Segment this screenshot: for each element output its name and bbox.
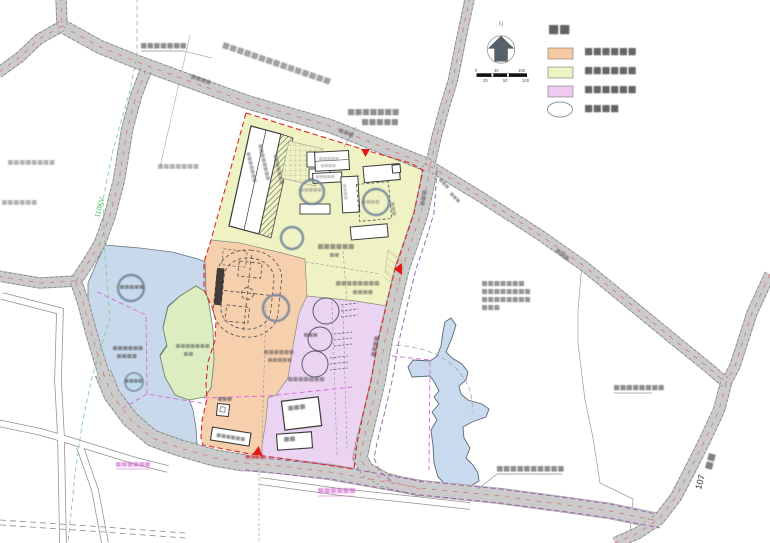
svg-text:0: 0	[475, 68, 478, 73]
svg-text:25: 25	[483, 78, 488, 83]
svg-text:100: 100	[518, 68, 526, 73]
svg-text:100: 100	[522, 78, 530, 83]
svg-text:40: 40	[494, 68, 499, 73]
svg-text:N: N	[499, 21, 504, 28]
svg-text:50: 50	[503, 78, 508, 83]
svg-text:107: 107	[693, 473, 707, 490]
